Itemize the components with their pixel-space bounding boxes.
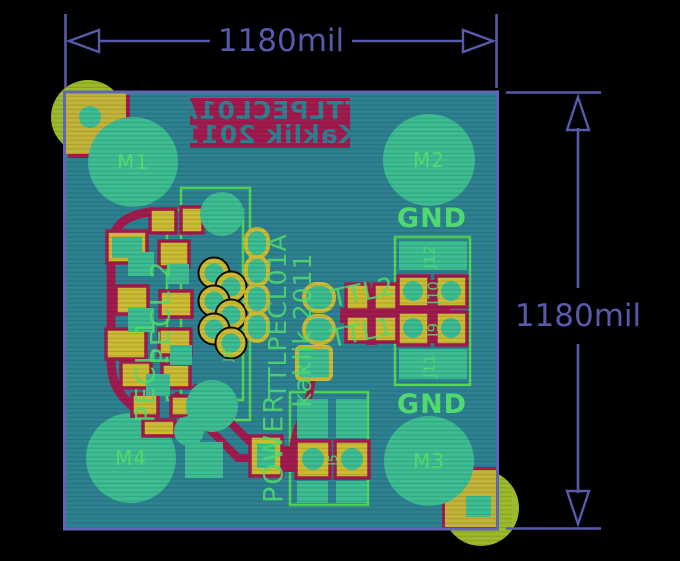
label-j9: J9 bbox=[424, 323, 442, 338]
label-j8: J8 bbox=[221, 350, 235, 362]
dimension-vertical: 1180mil bbox=[506, 93, 641, 529]
label-pecl1: PECL 1 bbox=[130, 318, 161, 423]
dimension-horizontal: 1180mil bbox=[66, 14, 497, 88]
label-j12: J12 bbox=[420, 245, 438, 270]
dim-arrow-left bbox=[69, 30, 99, 52]
label-j11: J11 bbox=[420, 354, 438, 379]
label-m1: M1 bbox=[117, 150, 149, 174]
label-board-author: kaklik 2011 bbox=[288, 253, 317, 408]
pcb-canvas[interactable]: TTLPECL01A Kaklik 2011 bbox=[0, 0, 680, 561]
label-power: POWER bbox=[258, 393, 289, 503]
dim-label-vertical: 1180mil bbox=[515, 298, 641, 334]
label-m2: M2 bbox=[413, 148, 445, 172]
label-gnd-top: GND bbox=[397, 203, 467, 234]
dim-label-horizontal: 1180mil bbox=[218, 23, 344, 59]
label-j5: J5 bbox=[326, 454, 340, 466]
label-j10: J10 bbox=[424, 281, 442, 306]
label-gnd-bottom: GND bbox=[397, 389, 467, 420]
dim-arrow-right bbox=[463, 30, 493, 52]
dim-arrow-up bbox=[567, 97, 589, 130]
label-m4: M4 bbox=[115, 446, 147, 470]
label-m3: M3 bbox=[413, 449, 445, 473]
dim-arrow-down bbox=[567, 491, 589, 524]
